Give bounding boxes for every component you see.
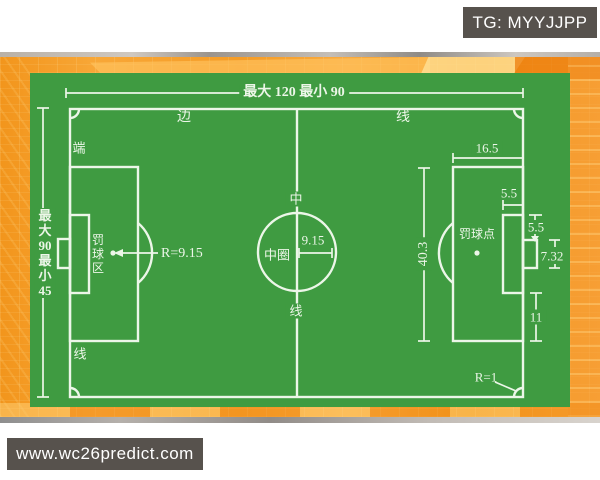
penalty-area-char: 罚 bbox=[92, 234, 104, 246]
dim-5-5-vertical-label: 5.5 bbox=[528, 221, 544, 234]
penalty-area-char: 球 bbox=[92, 248, 104, 260]
goal-line-label-1: 端 bbox=[72, 142, 85, 155]
corner-arc-bottom-left bbox=[70, 388, 79, 397]
left-goal bbox=[58, 239, 70, 268]
dim-11-label: 11 bbox=[526, 310, 547, 325]
width-char: 45 bbox=[38, 284, 51, 297]
left-goal-area bbox=[70, 215, 89, 293]
field-diagram bbox=[0, 0, 600, 480]
goal-line-label-2: 线 bbox=[73, 348, 86, 361]
page: { "badges": { "telegram": "TG: MYYJJPP",… bbox=[0, 0, 600, 480]
corner-radius-pointer-line bbox=[495, 382, 516, 391]
width-char: 最 bbox=[38, 254, 51, 267]
dim-5-5-horizontal-label: 5.5 bbox=[501, 187, 517, 200]
width-char: 90 bbox=[38, 239, 51, 252]
corner-arc-bottom-right bbox=[514, 388, 523, 397]
right-penalty-spot-dot bbox=[474, 250, 479, 255]
dim-7-32-label: 7.32 bbox=[541, 250, 564, 263]
width-char: 大 bbox=[38, 224, 51, 237]
width-char: 小 bbox=[38, 269, 51, 282]
touchline-label-1: 边 bbox=[177, 111, 191, 125]
pitch-length-dim-label: 最大 120 最小 90 bbox=[239, 85, 349, 101]
touchline-label-2: 线 bbox=[396, 111, 410, 125]
corner-arc-top-left bbox=[70, 109, 79, 118]
right-goal-area bbox=[503, 215, 523, 293]
halfway-line-label-1: 中 bbox=[285, 192, 306, 207]
center-circle-label: 中圈 bbox=[264, 249, 290, 262]
penalty-arc-radius-label: R=9.15 bbox=[161, 247, 203, 261]
penalty-area-char: 区 bbox=[92, 262, 104, 274]
penalty-spot-label: 罚球点 bbox=[459, 228, 495, 240]
width-char: 最 bbox=[38, 209, 51, 222]
halfway-line-label-2: 线 bbox=[285, 304, 306, 319]
center-circle-radius-label: 9.15 bbox=[302, 234, 325, 247]
right-goal bbox=[523, 240, 537, 268]
penalty-area-label: 罚 球 区 bbox=[92, 234, 104, 274]
arrowhead-left-icon bbox=[114, 249, 123, 257]
penalty-area-char-stack: 罚 球 区 bbox=[92, 234, 104, 274]
right-penalty-arc bbox=[439, 223, 453, 283]
pitch-width-dim-label: 最 大 90 最 小 45 bbox=[34, 208, 55, 298]
pitch-width-char-stack: 最 大 90 最 小 45 bbox=[38, 209, 51, 297]
corner-arc-top-right bbox=[514, 109, 523, 118]
corner-arc-radius-label: R=1 bbox=[475, 371, 498, 384]
dim-40-3-label: 40.3 bbox=[416, 238, 432, 271]
dimension-lines bbox=[37, 88, 560, 397]
dim-16-5-label: 16.5 bbox=[472, 141, 503, 156]
